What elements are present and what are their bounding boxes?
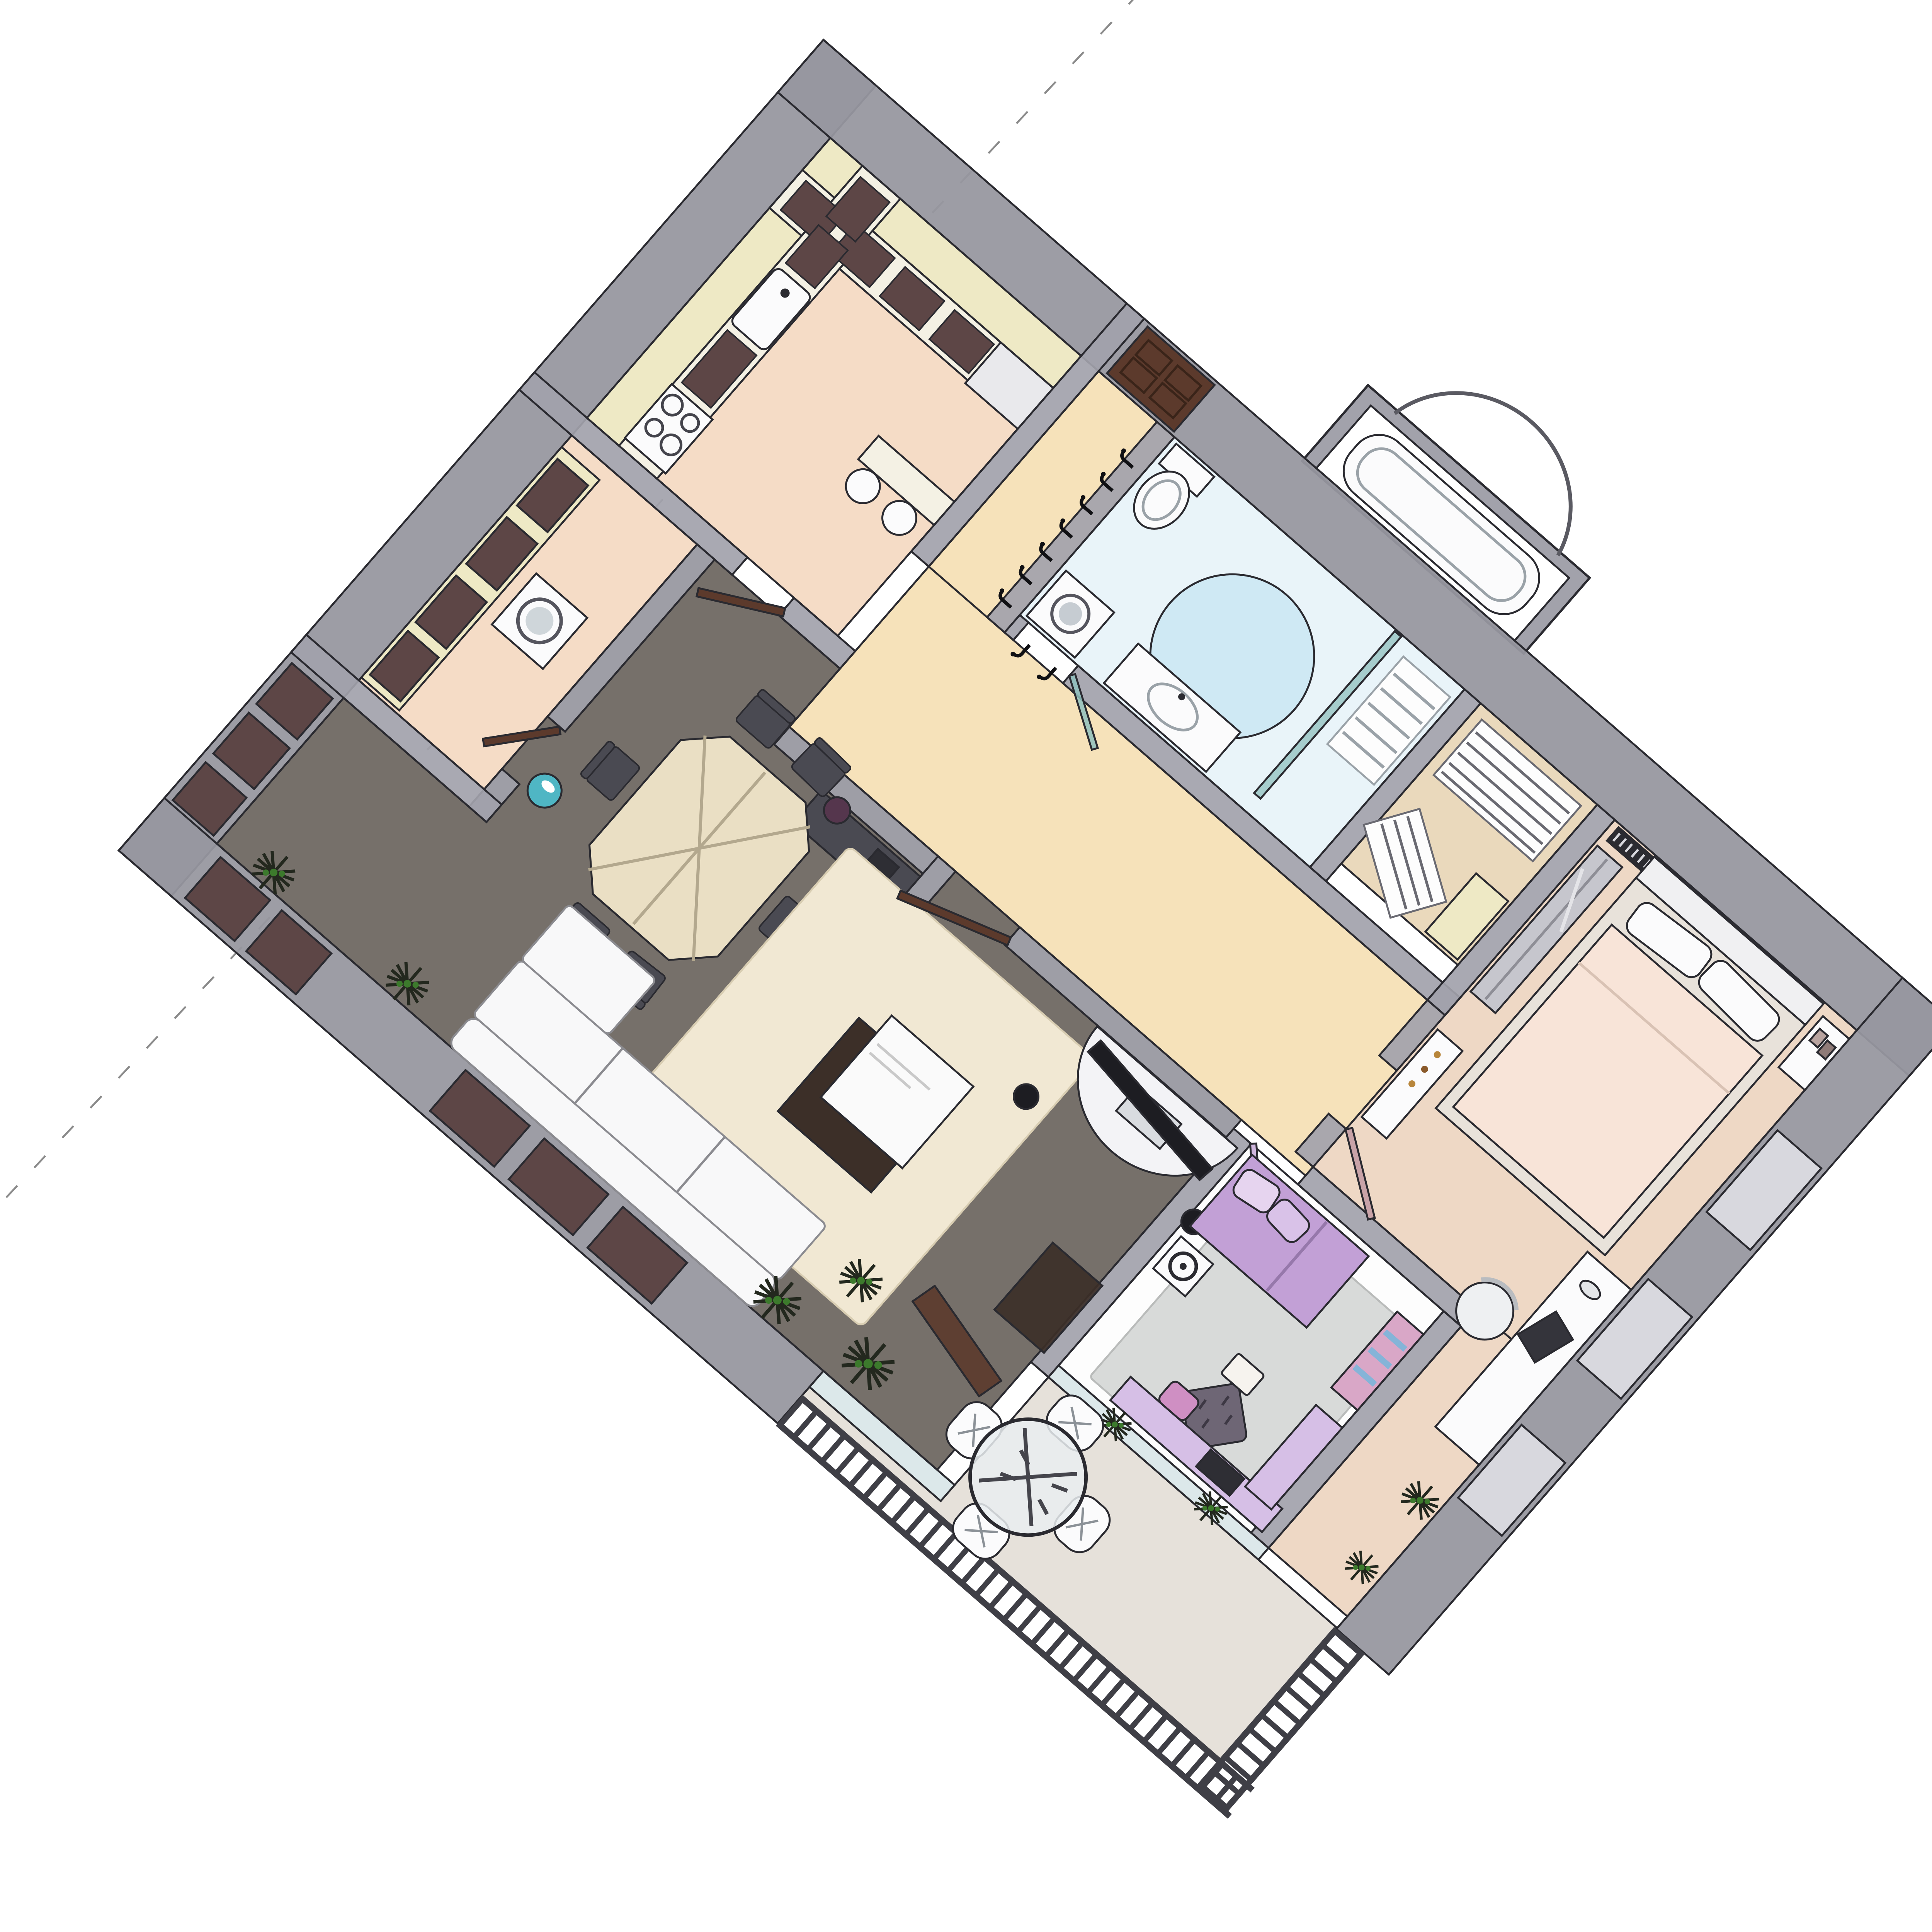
apartment-plan	[119, 0, 1932, 1834]
floor-plan-canvas	[0, 0, 1932, 1932]
floor-plan-svg	[0, 0, 1932, 1932]
